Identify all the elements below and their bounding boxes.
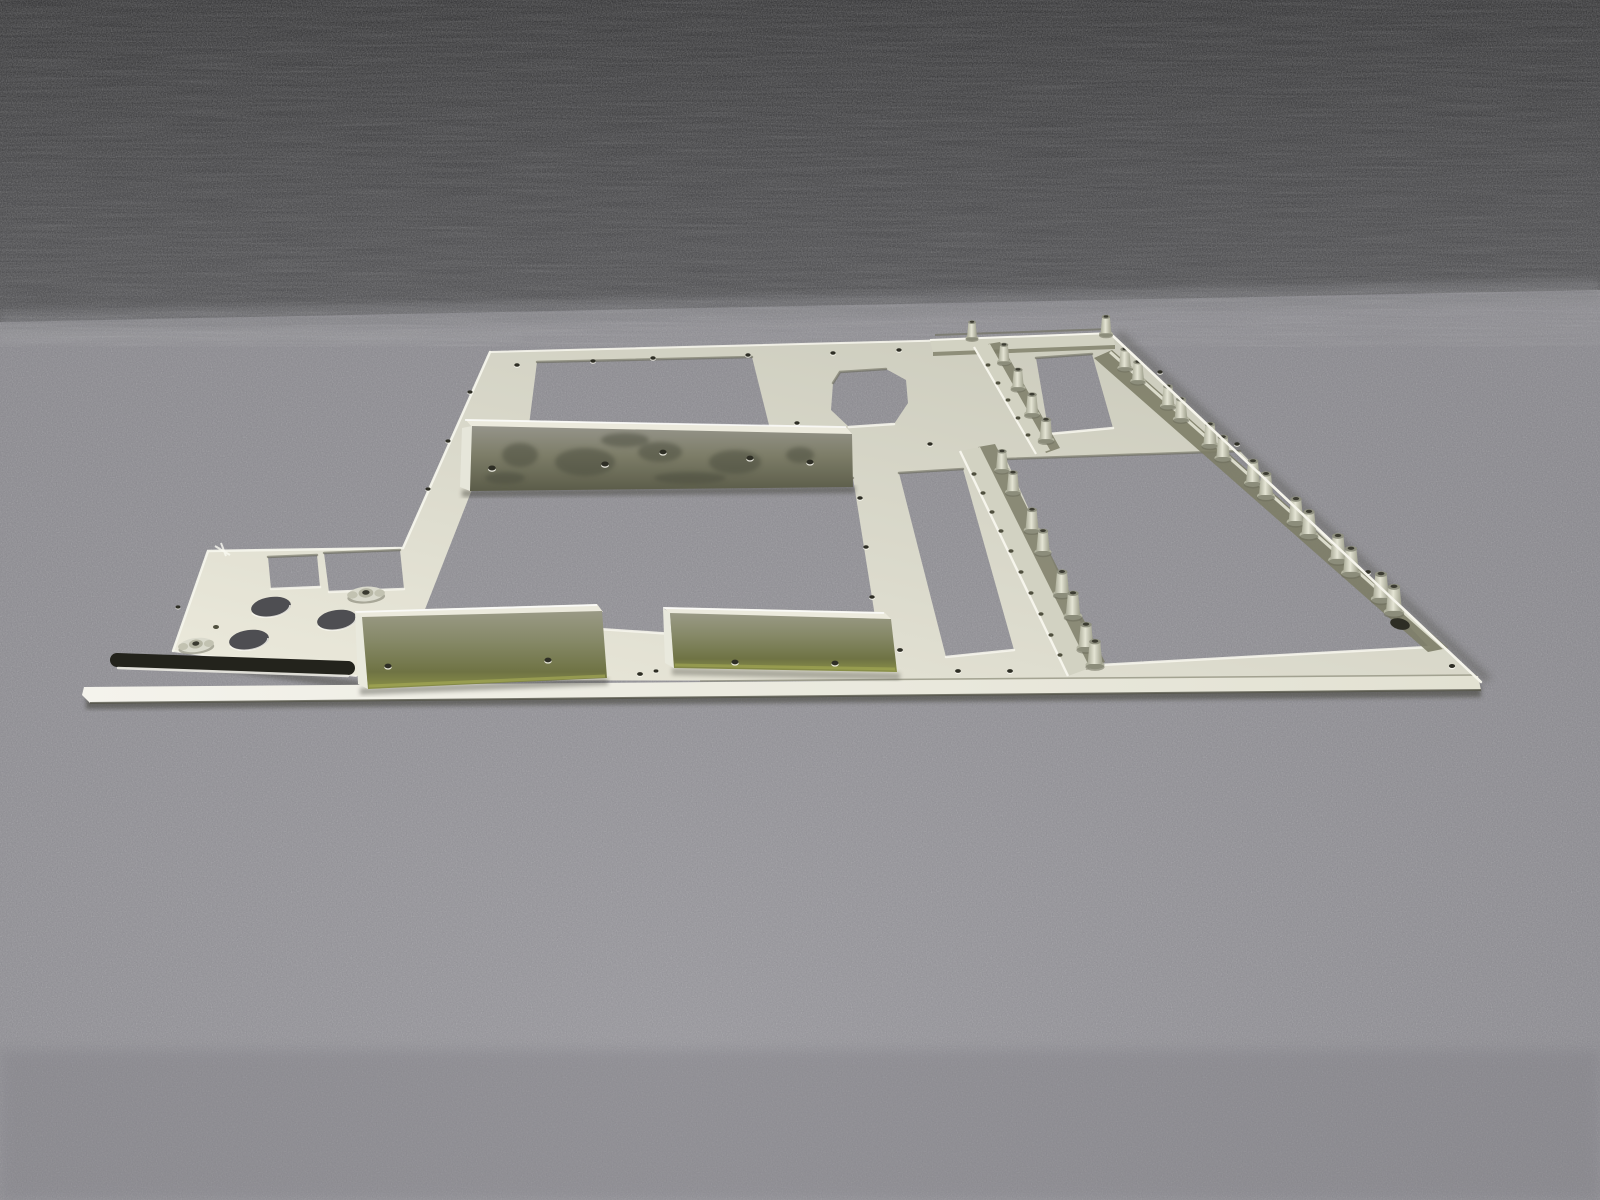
- stiffener-block-lower-middle: [663, 607, 900, 680]
- block-end-face: [460, 426, 472, 491]
- carpet-weave-rows: [0, 0, 1600, 330]
- long-slot: [117, 660, 348, 668]
- block-front-face: [670, 613, 897, 672]
- stiffener-block-lower-left: [355, 604, 608, 695]
- photo-of-metal-panel-on-carpet: A flat pale-green aluminum avionics moun…: [0, 0, 1600, 1200]
- stiffener-block-top-bar: [460, 419, 855, 497]
- carpet-bottom-shade: [0, 1050, 1600, 1200]
